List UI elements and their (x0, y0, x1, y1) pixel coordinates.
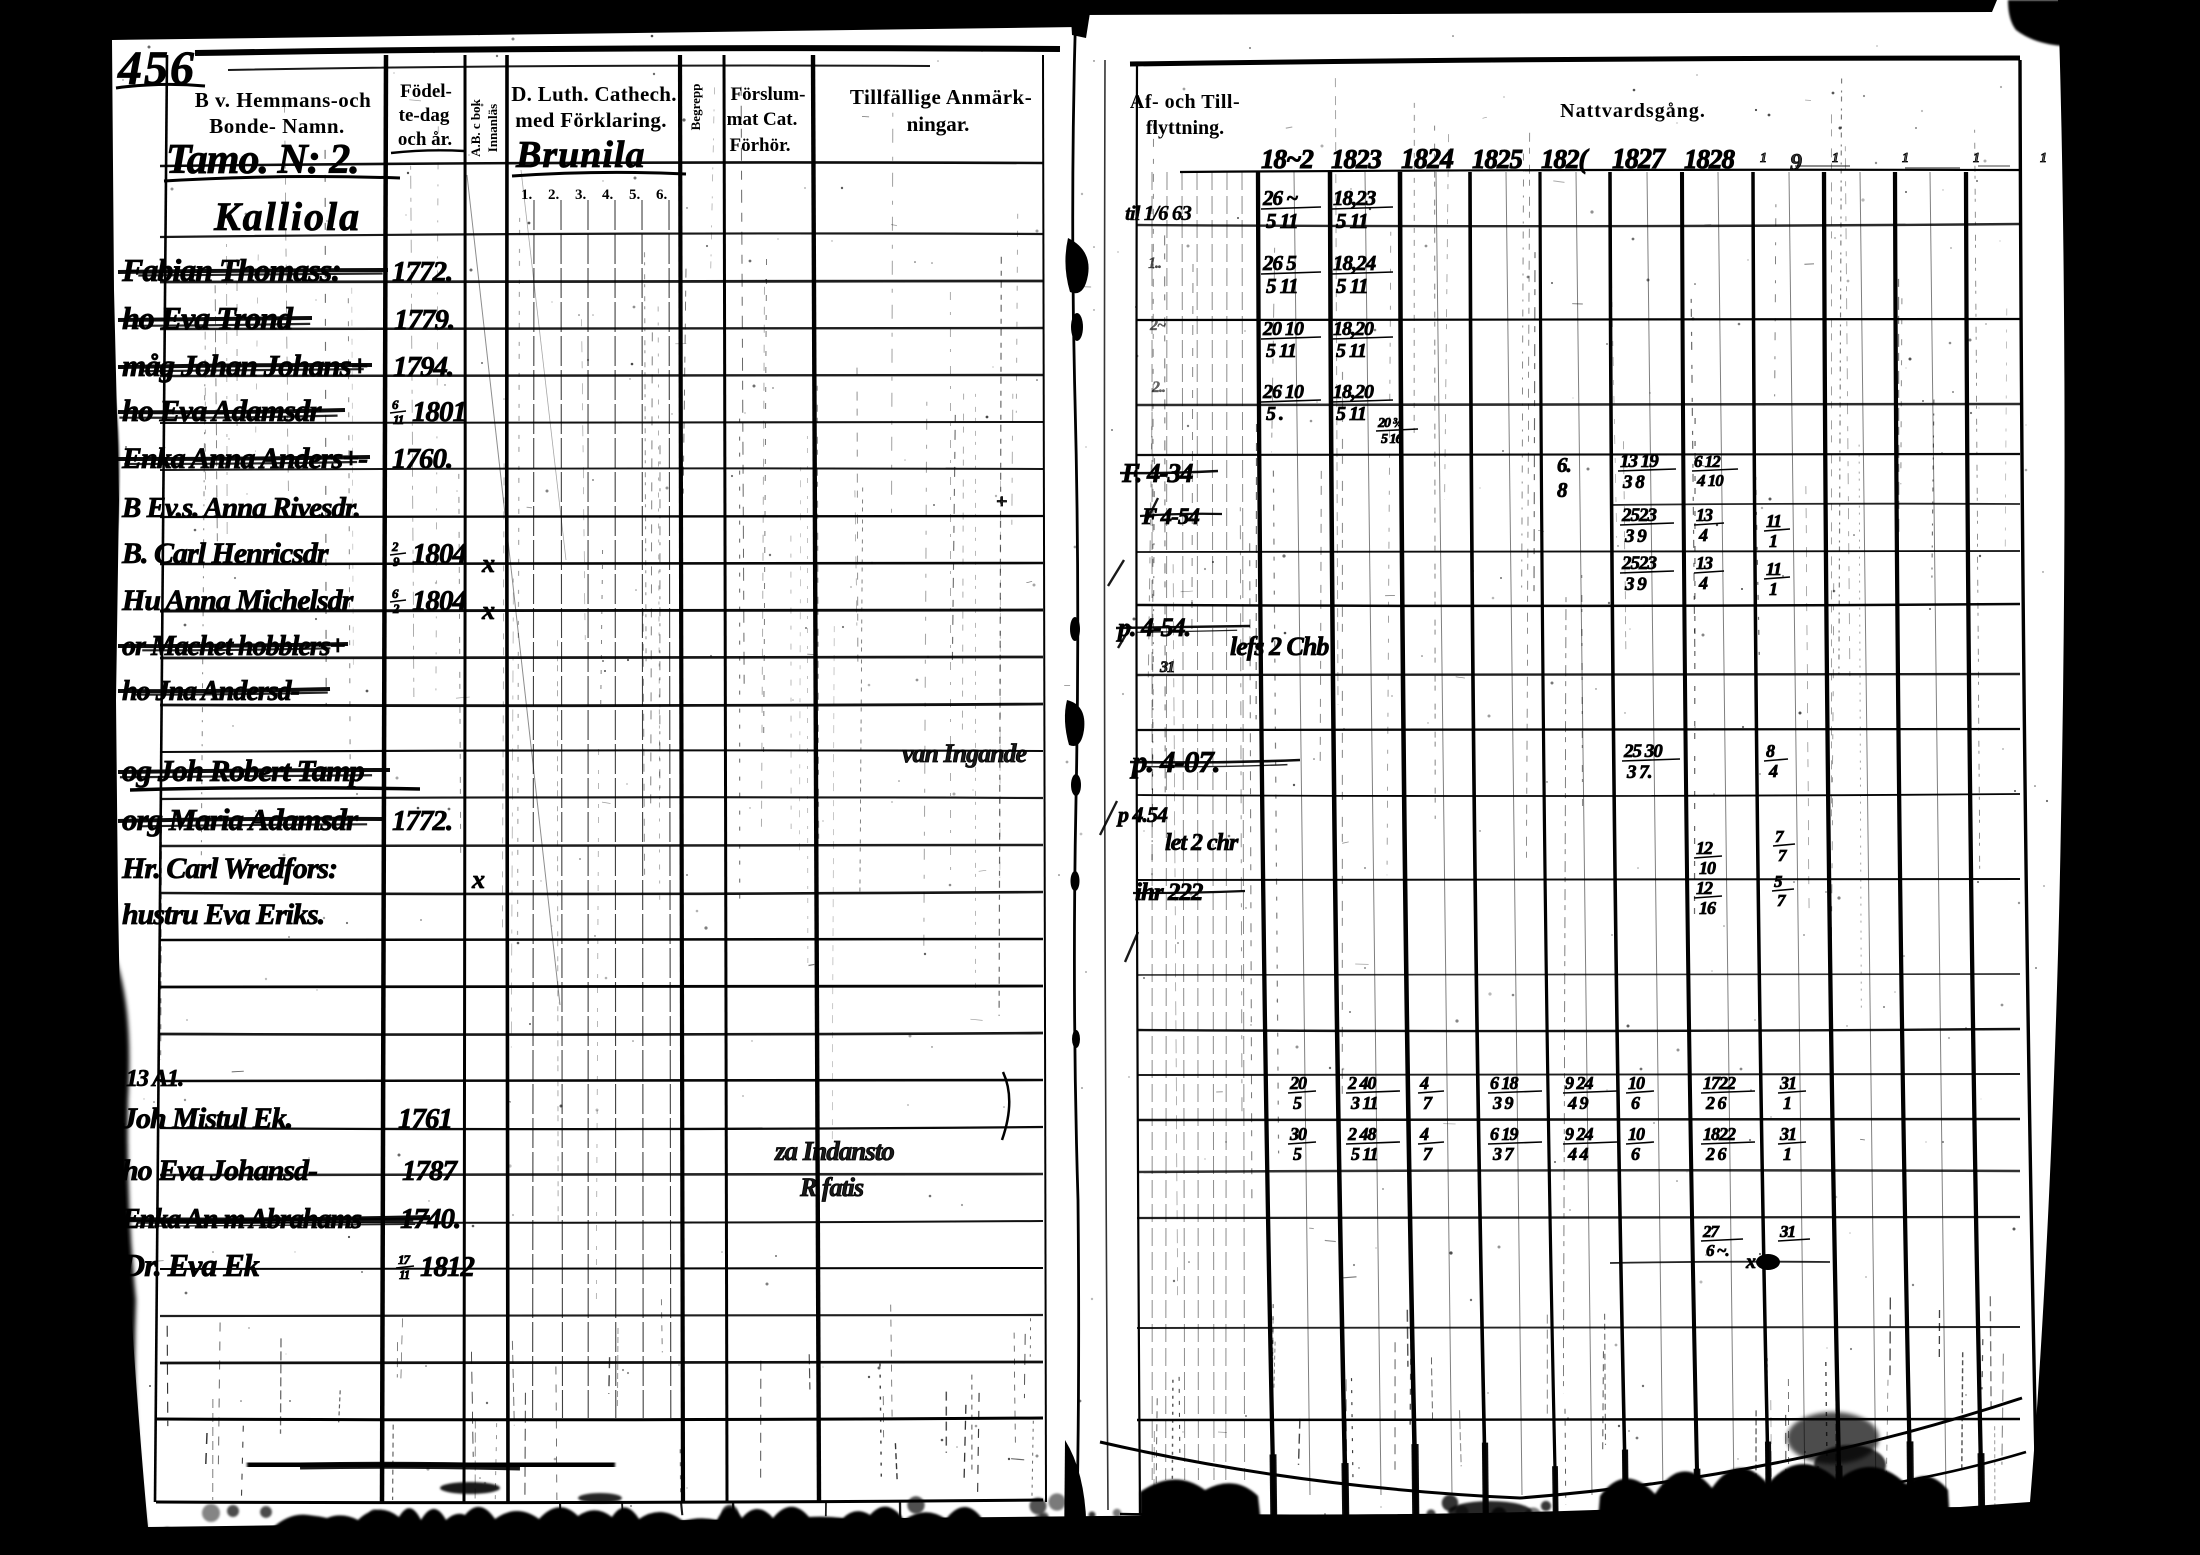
svg-text:18,20: 18,20 (1333, 381, 1374, 403)
svg-text:5 11: 5 11 (1266, 209, 1298, 233)
svg-text:18~2: 18~2 (1261, 144, 1313, 174)
svg-text:1: 1 (1902, 151, 1908, 166)
svg-text:3 9: 3 9 (1624, 574, 1647, 595)
svg-text:1801: 1801 (412, 396, 466, 428)
svg-text:1822: 1822 (1703, 1124, 1736, 1144)
svg-text:1772.: 1772. (392, 256, 452, 288)
svg-text:x: x (1745, 1251, 1756, 1273)
svg-text:182(: 182( (1541, 144, 1590, 174)
svg-text:Innanläs: Innanläs (485, 104, 500, 152)
svg-text:1804: 1804 (412, 585, 467, 617)
svg-text:med Förklaring.: med Förklaring. (515, 108, 667, 132)
svg-text:1824: 1824 (1401, 144, 1454, 175)
svg-text:1761: 1761 (398, 1103, 452, 1135)
svg-text:5 16: 5 16 (1381, 432, 1403, 447)
svg-text:11: 11 (1766, 559, 1781, 579)
svg-text:Tillfällige Anmärk-: Tillfällige Anmärk- (850, 85, 1032, 109)
svg-text:2~: 2~ (1149, 317, 1166, 334)
svg-text:3.: 3. (575, 187, 587, 203)
svg-text:11: 11 (393, 412, 404, 427)
svg-text:R fatis: R fatis (799, 1173, 864, 1202)
svg-text:6.: 6. (1557, 453, 1571, 477)
svg-text:11: 11 (399, 1267, 410, 1282)
svg-text:5 11: 5 11 (1266, 340, 1296, 362)
svg-text:5 11: 5 11 (1351, 1144, 1378, 1164)
svg-text:5: 5 (1293, 1144, 1302, 1164)
svg-text:1827: 1827 (1612, 144, 1666, 175)
svg-text:3 9: 3 9 (1624, 526, 1647, 547)
svg-text:6 ~.: 6 ~. (1706, 1241, 1729, 1260)
svg-text:Brunila: Brunila (515, 134, 646, 176)
svg-text:20 ¾: 20 ¾ (1377, 416, 1403, 431)
svg-text:1787: 1787 (402, 1155, 459, 1187)
svg-text:1823: 1823 (1331, 144, 1382, 174)
svg-text:1772.: 1772. (392, 805, 452, 837)
svg-text:5: 5 (1293, 1093, 1302, 1113)
svg-text:2 6: 2 6 (1705, 1093, 1727, 1113)
svg-text:31: 31 (1779, 1222, 1795, 1241)
svg-text:4 10: 4 10 (1696, 471, 1724, 490)
svg-text:6 12: 6 12 (1694, 452, 1721, 471)
svg-text:x: x (481, 549, 495, 578)
svg-text:x: x (471, 865, 485, 894)
svg-text:2523: 2523 (1621, 553, 1657, 574)
svg-text:x: x (481, 596, 495, 625)
svg-text:13: 13 (1696, 553, 1713, 573)
svg-text:2 6: 2 6 (1705, 1144, 1727, 1164)
svg-text:12: 12 (1696, 838, 1713, 858)
svg-text:van Ingande: van Ingande (902, 739, 1027, 768)
svg-text:4: 4 (1419, 1124, 1429, 1144)
svg-text:F 4-54: F 4-54 (1141, 504, 1199, 529)
svg-text:6.: 6. (656, 187, 668, 203)
svg-text:Kalliola: Kalliola (213, 194, 361, 239)
svg-text:mat Cat.: mat Cat. (727, 109, 798, 130)
svg-text:1794.: 1794. (393, 351, 453, 383)
svg-text:25 30: 25 30 (1623, 741, 1663, 762)
svg-text:11: 11 (1766, 511, 1781, 531)
svg-text:Joh Mistul Ek.: Joh Mistul Ek. (121, 1102, 292, 1135)
svg-text:10: 10 (1628, 1073, 1645, 1093)
svg-text:1779.: 1779. (394, 304, 454, 336)
svg-text:20 10: 20 10 (1262, 318, 1304, 340)
svg-text:18,20: 18,20 (1333, 318, 1374, 340)
svg-text:4: 4 (1768, 761, 1778, 781)
svg-text:Förhör.: Förhör. (729, 135, 790, 156)
svg-text:13 19: 13 19 (1620, 451, 1659, 472)
svg-text:Af- och Till-: Af- och Till- (1130, 91, 1240, 113)
svg-text:5 11: 5 11 (1336, 209, 1368, 233)
svg-text:6 19: 6 19 (1490, 1124, 1519, 1144)
svg-text:Begrepp: Begrepp (688, 84, 703, 131)
svg-text:5 .: 5 . (1266, 403, 1283, 425)
svg-text:1812: 1812 (420, 1251, 475, 1283)
svg-text:31: 31 (1159, 659, 1174, 676)
svg-text:1: 1 (2040, 151, 2046, 166)
svg-text:ho Eva Johansd-: ho Eva Johansd- (122, 1154, 317, 1187)
svg-text:6: 6 (1631, 1093, 1640, 1113)
svg-text:B v. Hemmans-och: B v. Hemmans-och (195, 88, 372, 112)
svg-text:8: 8 (1766, 741, 1775, 761)
svg-text:A.B. c bok: A.B. c bok (468, 98, 483, 157)
svg-text:1: 1 (1783, 1093, 1791, 1113)
svg-text:4 4: 4 4 (1567, 1144, 1589, 1164)
svg-text:26 ~: 26 ~ (1262, 186, 1298, 210)
svg-text:2.: 2. (548, 187, 560, 203)
svg-text:3 7: 3 7 (1492, 1144, 1515, 1164)
svg-text:6 18: 6 18 (1490, 1073, 1519, 1093)
svg-text:lefs 2 Chb: lefs 2 Chb (1230, 632, 1329, 661)
svg-text:4: 4 (1698, 525, 1708, 545)
svg-text:3 8: 3 8 (1622, 472, 1645, 493)
svg-text:27: 27 (1702, 1222, 1721, 1241)
svg-text:1..: 1.. (1148, 255, 1161, 272)
svg-text:26 10: 26 10 (1262, 381, 1304, 403)
svg-text:D. Luth. Cathech.: D. Luth. Cathech. (511, 82, 677, 106)
svg-text:20: 20 (1289, 1073, 1307, 1093)
svg-text:B Ev.s. Anna Rivesdr.: B Ev.s. Anna Rivesdr. (121, 492, 360, 524)
svg-text:18,23: 18,23 (1333, 186, 1376, 210)
svg-text:2523: 2523 (1621, 505, 1657, 526)
svg-text:2 48: 2 48 (1347, 1124, 1377, 1144)
svg-text:10: 10 (1628, 1124, 1645, 1144)
svg-text:ningar.: ningar. (907, 112, 970, 136)
svg-text:6: 6 (1631, 1144, 1640, 1164)
svg-text:18,24: 18,24 (1333, 251, 1376, 275)
svg-text:te-dag: te-dag (399, 105, 450, 126)
svg-text:Dr. Eva Ek: Dr. Eva Ek (121, 1247, 260, 1283)
svg-text:4 9: 4 9 (1567, 1093, 1589, 1113)
svg-text:1.: 1. (521, 187, 533, 203)
svg-text:1: 1 (1832, 151, 1838, 166)
svg-text:Förslum-: Förslum- (731, 84, 806, 105)
svg-text:16: 16 (1699, 898, 1716, 918)
svg-text:5 11: 5 11 (1336, 340, 1366, 362)
svg-text:1: 1 (1769, 579, 1777, 599)
svg-text:13: 13 (1696, 505, 1713, 525)
svg-text:1: 1 (1769, 531, 1777, 551)
svg-text:31: 31 (1779, 1124, 1796, 1144)
svg-text:2..: 2.. (1151, 379, 1165, 396)
svg-text:1804: 1804 (412, 538, 467, 570)
svg-text:31: 31 (1779, 1073, 1796, 1093)
svg-text:za Indansto: za Indansto (774, 1136, 894, 1166)
svg-text:B. Carl Henricsdr: B. Carl Henricsdr (121, 537, 329, 570)
svg-text:1722: 1722 (1703, 1073, 1736, 1093)
svg-text:9 24: 9 24 (1565, 1073, 1594, 1093)
svg-text:1: 1 (1760, 151, 1766, 166)
svg-text:och år.: och år. (398, 129, 452, 150)
svg-text:5.: 5. (629, 187, 641, 203)
svg-text:Hu Anna Michelsdr: Hu Anna Michelsdr (121, 584, 354, 617)
svg-text:13 A1.: 13 A1. (126, 1066, 183, 1092)
svg-text:8: 8 (1557, 478, 1568, 502)
svg-text:1: 1 (1783, 1144, 1791, 1164)
svg-text:Nattvardsgång.: Nattvardsgång. (1560, 100, 1706, 122)
svg-text:Bonde- Namn.: Bonde- Namn. (209, 114, 345, 138)
svg-text:30: 30 (1289, 1124, 1307, 1144)
svg-text:2 40: 2 40 (1347, 1073, 1377, 1093)
svg-text:4: 4 (1419, 1073, 1429, 1093)
svg-text:3 9: 3 9 (1492, 1093, 1514, 1113)
svg-text:1825: 1825 (1472, 144, 1523, 174)
svg-text:let 2 chr: let 2 chr (1165, 830, 1239, 856)
svg-text:+: + (996, 491, 1007, 513)
svg-text:1: 1 (1973, 151, 1979, 166)
svg-text:Hr. Carl Wredfors:: Hr. Carl Wredfors: (121, 852, 337, 885)
svg-text:5 11: 5 11 (1266, 274, 1298, 298)
svg-text:til 1/6 63: til 1/6 63 (1125, 201, 1191, 225)
svg-text:Födel-: Födel- (400, 81, 452, 102)
svg-text:hustru Eva Eriks.: hustru Eva Eriks. (122, 898, 324, 931)
svg-text:12: 12 (1696, 878, 1713, 898)
svg-text:4.: 4. (602, 187, 614, 203)
svg-text:10: 10 (1699, 858, 1716, 878)
svg-text:5 11: 5 11 (1336, 274, 1368, 298)
svg-text:1760.: 1760. (392, 443, 452, 475)
svg-text:4: 4 (1698, 573, 1708, 593)
svg-text:flyttning.: flyttning. (1146, 117, 1224, 139)
svg-text:1828: 1828 (1684, 144, 1736, 174)
svg-text:3 11: 3 11 (1350, 1093, 1378, 1113)
svg-text:9 24: 9 24 (1565, 1124, 1594, 1144)
svg-text:9: 9 (1790, 150, 1802, 176)
svg-text:17: 17 (398, 1252, 411, 1267)
svg-text:5 11: 5 11 (1336, 403, 1366, 425)
svg-text:26 5: 26 5 (1262, 251, 1296, 275)
svg-text:p 4.54: p 4.54 (1116, 802, 1168, 827)
svg-text:3 7.: 3 7. (1626, 762, 1652, 783)
